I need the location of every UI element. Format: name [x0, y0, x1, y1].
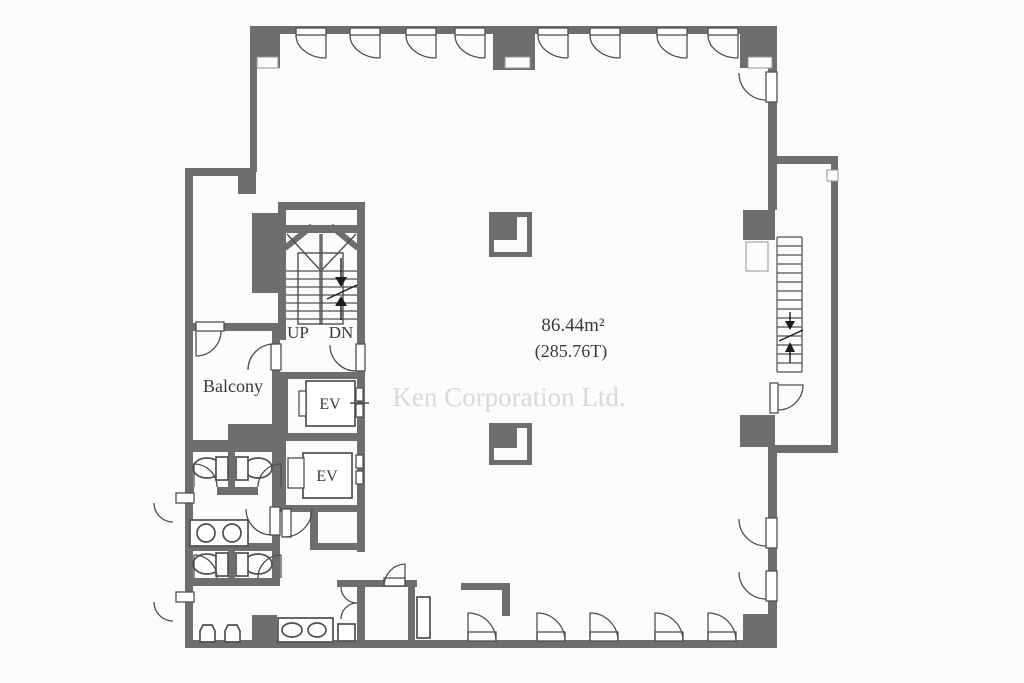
window-swing-icon — [455, 28, 485, 58]
window-swing-icon — [590, 28, 620, 58]
door-swing-icon — [468, 613, 496, 641]
door-swing-icon — [739, 571, 777, 601]
internal-stair: UP DN — [285, 226, 358, 342]
elevator-2: EV — [288, 453, 363, 498]
door-swing-icon — [248, 344, 281, 370]
door-swing-icon — [590, 613, 618, 641]
area-tsubo: (285.76T) — [535, 341, 607, 362]
floor-plan: UP DN Balcony EV EV — [0, 0, 1024, 683]
external-stair — [770, 237, 803, 413]
door-swing-icon — [708, 613, 736, 641]
window-swing-icon — [657, 28, 687, 58]
elevator-1-label: EV — [319, 396, 341, 413]
door-swing-icon — [196, 322, 224, 356]
window-swing-icon — [708, 28, 738, 58]
stair-direction-arrows — [779, 312, 803, 363]
bifold-doors — [341, 587, 357, 619]
bottom-wall-doors — [468, 613, 736, 641]
sink-counter — [190, 520, 248, 546]
door-swing-icon — [282, 509, 312, 537]
toilet-icon — [193, 553, 228, 576]
window-swing-icon — [406, 28, 436, 58]
area-square-meters: 86.44m² — [541, 315, 605, 336]
urinal-icon — [200, 625, 215, 642]
door-swing-icon — [384, 564, 405, 586]
duct-fixture — [417, 597, 430, 638]
window-swing-icon — [296, 28, 326, 58]
door-swing-icon — [655, 613, 683, 641]
urinal-icon — [225, 625, 240, 642]
watermark: Ken Corporation Ltd. — [392, 382, 625, 412]
balcony: Balcony — [196, 322, 263, 396]
door-swing-icon — [537, 613, 565, 641]
toilet-icon — [236, 553, 272, 576]
kitchen-area — [278, 564, 430, 642]
window-swing-icon — [538, 28, 568, 58]
column-upper — [489, 212, 532, 257]
door-swing-icon — [739, 518, 777, 548]
stair-down-label: DN — [329, 323, 354, 342]
door-swing-icon — [739, 72, 777, 102]
floor-plan-drawing: UP DN Balcony EV EV — [0, 0, 1024, 683]
window-swing-icon — [350, 28, 380, 58]
service-box — [338, 624, 355, 641]
door-swing-icon — [770, 383, 803, 413]
stair-hall-doors — [248, 344, 365, 371]
column-lower — [489, 423, 532, 465]
balcony-label: Balcony — [203, 376, 263, 396]
elevator-2-label: EV — [316, 468, 338, 485]
door-swing-icon — [330, 344, 365, 371]
stair-up-label: UP — [287, 323, 309, 342]
toilet-icon — [193, 457, 228, 480]
door-swing-icon — [246, 507, 280, 535]
kitchen-counter — [278, 618, 333, 642]
